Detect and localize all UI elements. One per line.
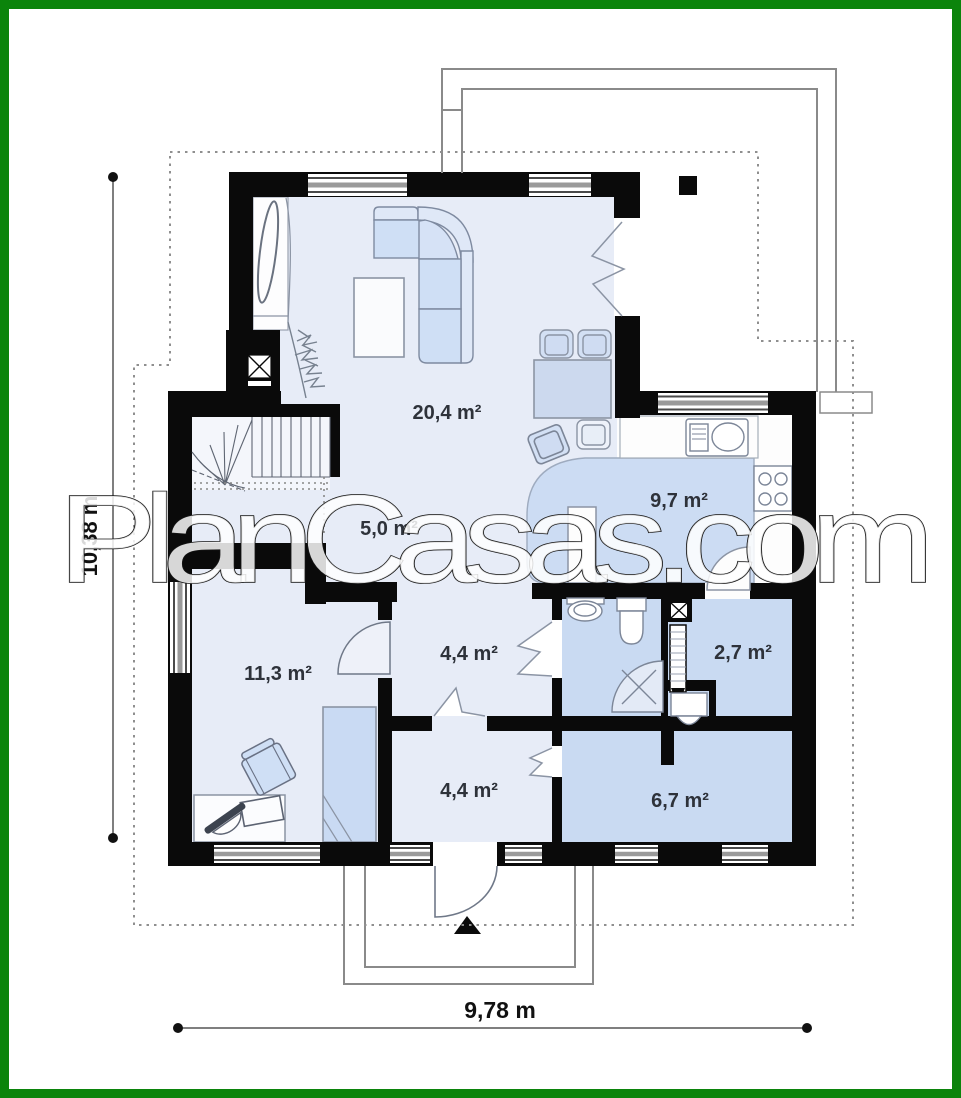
svg-text:9,78 m: 9,78 m [464,997,536,1023]
svg-text:6,7 m²: 6,7 m² [651,790,709,812]
svg-text:4,4 m²: 4,4 m² [440,643,498,665]
svg-text:4,4 m²: 4,4 m² [440,780,498,802]
svg-text:PlanCasas.com: PlanCasas.com [57,470,925,609]
svg-text:2,7 m²: 2,7 m² [714,642,772,664]
svg-text:20,4 m²: 20,4 m² [413,402,482,424]
svg-text:11,3 m²: 11,3 m² [244,663,312,685]
